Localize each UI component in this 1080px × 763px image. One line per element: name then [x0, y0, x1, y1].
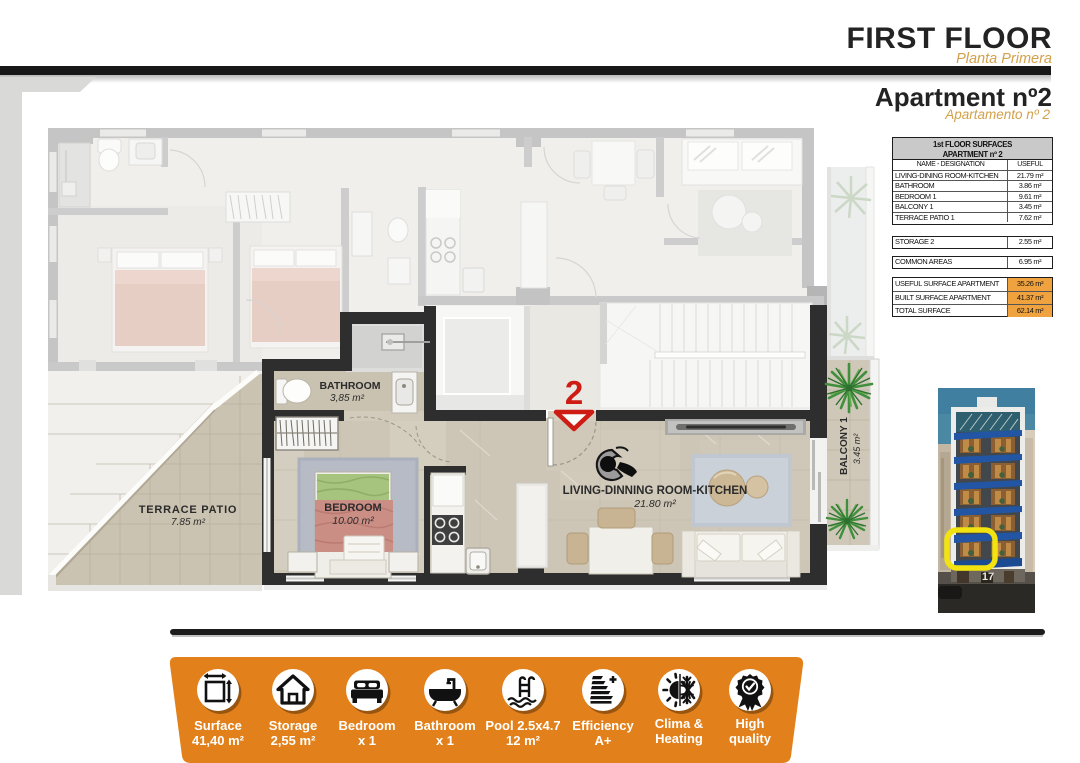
svg-text:LIVING-DINNING ROOM-KITCHEN: LIVING-DINNING ROOM-KITCHEN [563, 485, 748, 497]
svg-text:10.00 m²: 10.00 m² [332, 515, 374, 527]
svg-text:BALCONY 1: BALCONY 1 [839, 417, 850, 475]
svg-text:3,85 m²: 3,85 m² [330, 393, 365, 404]
svg-text:21.80 m²: 21.80 m² [633, 498, 676, 510]
svg-text:TERRACE PATIO: TERRACE PATIO [139, 504, 238, 516]
svg-text:BEDROOM: BEDROOM [324, 502, 381, 514]
svg-text:2: 2 [565, 374, 583, 411]
svg-text:3.45 m²: 3.45 m² [852, 433, 862, 465]
svg-text:7.85 m²: 7.85 m² [171, 517, 206, 528]
svg-text:17: 17 [982, 571, 994, 583]
svg-text:BATHROOM: BATHROOM [319, 380, 380, 392]
